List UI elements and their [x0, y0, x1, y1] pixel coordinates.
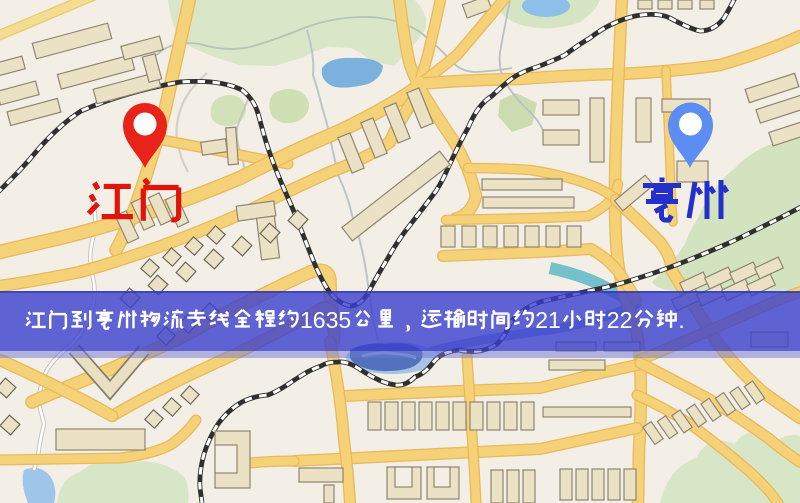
svg-text:.: .	[678, 307, 684, 333]
svg-text:21: 21	[535, 307, 561, 333]
svg-text:1635: 1635	[300, 307, 351, 333]
svg-text:22: 22	[607, 307, 633, 333]
